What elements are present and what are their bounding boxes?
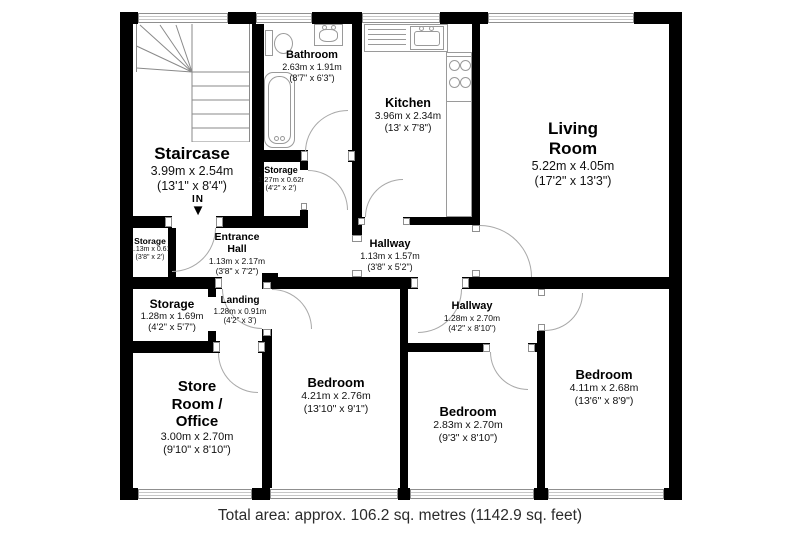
room-dim-imperial: (8'7" x 6'3") — [272, 73, 352, 84]
door-arc — [305, 110, 348, 152]
room-name: Bathroom — [272, 49, 352, 62]
room-dim-metric: 1.28m x 2.70m — [432, 313, 512, 323]
room-dim-imperial: (4'2" x 2') — [258, 184, 304, 193]
door-arc — [490, 352, 528, 390]
room-name: Entrance — [197, 231, 277, 243]
room-dim-metric: 1.28m x 0.91m — [210, 307, 270, 316]
room-dim-metric: 1.13m x 2.17m — [197, 256, 277, 266]
window — [138, 13, 228, 23]
room-dim-metric: 2.83m x 2.70m — [408, 419, 528, 431]
door-arc — [272, 289, 312, 329]
floor-plan: Staircase 3.99m x 2.54m (13'1" x 8'4") I… — [0, 0, 800, 538]
room-label-entrance-hall: Entrance Hall 1.13m x 2.17m (3'8" x 7'2"… — [197, 231, 277, 276]
door-jamb — [538, 289, 545, 296]
door-jamb — [263, 282, 271, 289]
room-label-bathroom: Bathroom 2.63m x 1.91m (8'7" x 6'3") — [272, 49, 352, 83]
hob-burner — [449, 77, 460, 88]
door-jamb — [215, 278, 222, 288]
hob-burner — [460, 60, 471, 71]
room-dim-imperial: (4'2" x 5'7") — [134, 322, 210, 333]
wall — [252, 24, 264, 228]
door-jamb — [258, 342, 265, 352]
hob-burner — [449, 60, 460, 71]
room-dim-metric: 1.28m x 1.69m — [134, 311, 210, 322]
wall — [398, 488, 410, 500]
tap-icon — [331, 25, 336, 30]
room-dim-imperial: (4'2" x 3') — [210, 316, 270, 325]
drainer — [368, 29, 406, 48]
wall — [132, 341, 220, 353]
room-dim-imperial: (3'8" x 5'2") — [350, 262, 430, 273]
door-arc — [480, 225, 532, 277]
door-jamb — [462, 278, 469, 288]
wall — [120, 277, 222, 289]
room-dim-imperial: (9'10" x 8'10") — [137, 444, 257, 457]
wall — [312, 12, 362, 24]
room-name: Storage — [134, 297, 210, 311]
wall — [228, 12, 256, 24]
room-name: Staircase — [122, 144, 262, 164]
room-label-staircase: Staircase 3.99m x 2.54m (13'1" x 8'4") — [122, 144, 262, 194]
window — [488, 13, 634, 23]
room-dim-imperial: (13'1" x 8'4") — [122, 179, 262, 194]
door-jamb — [472, 270, 480, 277]
room-label-landing: Landing 1.28m x 0.91m (4'2" x 3') — [210, 295, 270, 326]
room-name: Hallway — [432, 300, 512, 313]
wall — [664, 488, 682, 500]
door-jamb — [483, 344, 490, 352]
room-name3: Office — [137, 413, 257, 431]
room-label-bedroom-right: Bedroom 4.11m x 2.68m (13'6" x 8'9") — [544, 367, 664, 407]
door-jamb — [301, 203, 307, 210]
kitchen-sink-bowl — [414, 31, 440, 46]
wall — [262, 329, 272, 488]
window — [270, 489, 398, 499]
door-jamb — [403, 218, 410, 225]
door-jamb — [263, 329, 271, 336]
room-name2: Room / — [137, 396, 257, 414]
wall — [440, 12, 488, 24]
room-label-hallway-upper: Hallway 1.13m x 1.57m (3'8" x 5'2") — [350, 238, 430, 272]
room-name: Storage — [130, 236, 170, 246]
tap-icon — [419, 26, 424, 31]
door-jamb — [213, 342, 220, 352]
tap-icon — [280, 136, 285, 141]
room-label-kitchen: Kitchen 3.96m x 2.34m (13' x 7'8") — [363, 96, 453, 134]
room-dim-metric: 4.11m x 2.68m — [544, 382, 664, 394]
room-dim-metric: 1.13m x 0.61m — [130, 246, 170, 254]
door-jamb — [348, 151, 355, 161]
door-jamb — [216, 217, 223, 227]
wall — [669, 12, 682, 500]
room-dim-metric: 4.21m x 2.76m — [276, 390, 396, 402]
wall — [120, 488, 138, 500]
room-name: Bedroom — [408, 404, 528, 419]
window — [138, 489, 252, 499]
window — [410, 489, 534, 499]
room-label-bedroom-middle: Bedroom 2.83m x 2.70m (9'3" x 8'10") — [408, 404, 528, 444]
room-dim-metric: 3.96m x 2.34m — [363, 111, 453, 123]
room-name: Hallway — [350, 238, 430, 251]
room-dim-imperial: (4'2" x 8'10") — [432, 323, 512, 333]
room-label-storage-landing: Storage 1.28m x 1.69m (4'2" x 5'7") — [134, 297, 210, 334]
wall — [400, 289, 408, 488]
total-area-caption: Total area: approx. 106.2 sq. metres (11… — [0, 507, 800, 525]
room-name: Bedroom — [276, 375, 396, 390]
down-arrow-icon: ▼ — [176, 205, 220, 217]
room-dim-imperial: (13'6" x 8'9") — [544, 395, 664, 407]
stairs — [136, 24, 250, 142]
entry-marker: IN ▼ — [176, 194, 220, 217]
room-name2: Room — [503, 139, 643, 159]
wall — [252, 488, 270, 500]
room-dim-metric: 3.00m x 2.70m — [137, 431, 257, 444]
wall — [403, 217, 480, 225]
tap-icon — [429, 26, 434, 31]
door-jamb — [301, 151, 308, 161]
wall — [352, 24, 362, 235]
room-name: Living — [503, 119, 643, 139]
room-dim-metric: 3.99m x 2.54m — [122, 164, 262, 179]
room-dim-metric: 2.63m x 1.91m — [272, 62, 352, 73]
room-name: Kitchen — [363, 96, 453, 111]
room-dim-imperial: (3'8" x 7'2") — [197, 266, 277, 276]
sink-basin-bowl — [319, 29, 338, 42]
door-jamb — [358, 218, 365, 225]
room-name: Bedroom — [544, 367, 664, 382]
door-jamb — [538, 324, 545, 331]
door-jamb — [411, 278, 418, 288]
room-dim-imperial: (17'2" x 13'3") — [503, 174, 643, 189]
door-arc — [365, 179, 403, 217]
door-jamb — [165, 217, 172, 227]
bathtub-inner — [268, 76, 291, 144]
door-jamb — [472, 225, 480, 232]
wall — [262, 277, 418, 289]
room-name: Store — [137, 378, 257, 396]
hob-burner — [460, 77, 471, 88]
wall — [534, 488, 548, 500]
door-arc — [308, 170, 348, 210]
room-dim-metric: 5.22m x 4.05m — [503, 159, 643, 174]
window — [256, 13, 312, 23]
window — [548, 489, 664, 499]
room-dim-imperial: (13' x 7'8") — [363, 123, 453, 135]
wall — [408, 343, 490, 352]
wall — [537, 331, 545, 488]
window — [362, 13, 440, 23]
room-label-bedroom-left: Bedroom 4.21m x 2.76m (13'10" x 9'1") — [276, 375, 396, 415]
room-dim-metric: 1.13m x 1.57m — [350, 251, 430, 262]
room-label-store-room-office: Store Room / Office 3.00m x 2.70m (9'10"… — [137, 378, 257, 457]
tap-icon — [274, 136, 279, 141]
room-name2: Hall — [197, 243, 277, 255]
room-dim-imperial: (13'10" x 9'1") — [276, 403, 396, 415]
wall — [472, 24, 480, 225]
room-label-storage-bathroom: Storage 1.27m x 0.62m (4'2" x 2') — [258, 165, 304, 193]
wall — [462, 277, 682, 289]
door-arc — [545, 293, 583, 331]
room-dim-imperial: (9'3" x 8'10") — [408, 432, 528, 444]
wall — [216, 216, 308, 228]
room-name: Landing — [210, 295, 270, 307]
door-jamb — [528, 344, 535, 352]
room-label-storage-hall: Storage 1.13m x 0.61m (3'8" x 2') — [130, 236, 170, 263]
room-label-living-room: Living Room 5.22m x 4.05m (17'2" x 13'3"… — [503, 119, 643, 189]
room-dim-imperial: (3'8" x 2') — [130, 254, 170, 262]
room-label-hallway-lower: Hallway 1.28m x 2.70m (4'2" x 8'10") — [432, 300, 512, 333]
tap-icon — [322, 25, 327, 30]
